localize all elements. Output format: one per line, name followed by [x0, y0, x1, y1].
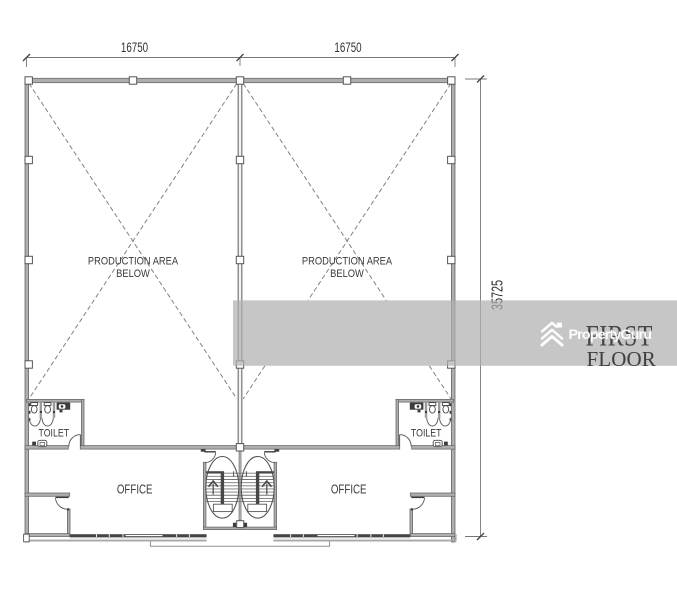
svg-text:PRODUCTION AREA: PRODUCTION AREA	[88, 256, 178, 268]
svg-text:TOILET: TOILET	[38, 428, 69, 440]
svg-text:16750: 16750	[334, 39, 361, 55]
svg-text:OFFICE: OFFICE	[331, 483, 367, 496]
svg-text:OFFICE: OFFICE	[117, 483, 153, 496]
svg-text:PropertyGuru: PropertyGuru	[569, 327, 652, 343]
svg-text:FLOOR: FLOOR	[587, 347, 656, 371]
svg-text:BELOW: BELOW	[116, 268, 150, 280]
svg-text:16750: 16750	[121, 39, 148, 55]
svg-text:BELOW: BELOW	[330, 268, 364, 280]
svg-text:TOILET: TOILET	[411, 428, 442, 440]
svg-text:PRODUCTION AREA: PRODUCTION AREA	[302, 256, 392, 268]
